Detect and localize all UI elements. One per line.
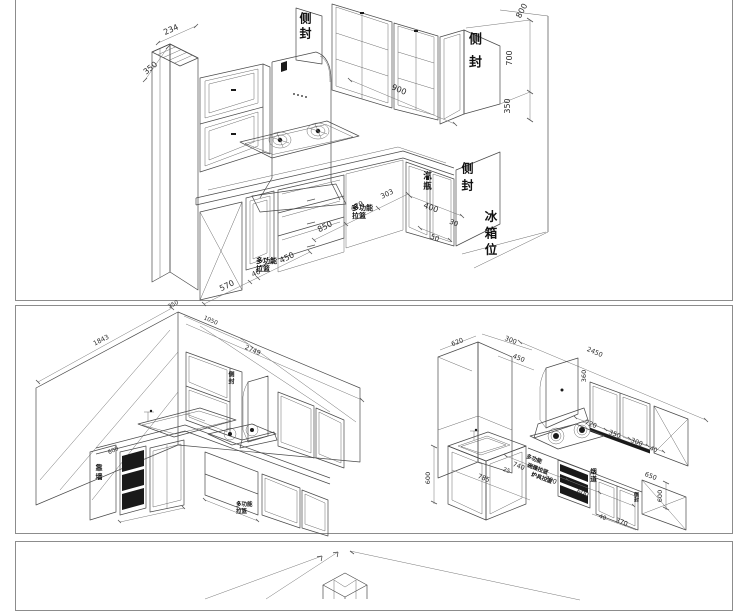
dim-300-top: 300 [503, 334, 517, 346]
dim-350-left: 350 [142, 60, 159, 77]
roof-dim: 2450 [518, 340, 708, 422]
dim-600: 600 [107, 446, 120, 456]
wall-cabinets [186, 352, 344, 468]
dim-650: 650 [643, 470, 657, 482]
dim-234-group: 234 [156, 22, 198, 45]
dim-900: 900 [390, 83, 408, 97]
label-end-panel-base: 侧封 [461, 162, 473, 196]
label-end-panel-right: 侧封 [467, 32, 480, 78]
dim-570: 570 [218, 278, 236, 293]
dim-450: 450 [278, 250, 296, 265]
label-basket-mid-line2: 拉篮 [352, 212, 373, 220]
drawing2-left-kitchen: 1843 350 1050 2749 [36, 300, 364, 536]
door-handles [231, 12, 429, 180]
dim-2450: 2450 [586, 345, 604, 359]
right-wall-line [500, 10, 548, 232]
label-flue: 烟道 [589, 468, 596, 483]
label-basket-mid: 多功能 拉篮 [352, 204, 373, 220]
drawing-1-axonometric: 234 350 [16, 0, 732, 300]
dim-740: 740 [511, 460, 525, 472]
tall-cabinet [438, 342, 512, 478]
dim-40-bottom: 40 [598, 514, 607, 522]
label-end-panel-d3: 侧封 [633, 492, 638, 502]
label-basket-d2-line1: 多功能 [236, 502, 253, 509]
dim-1843: 1843 [92, 333, 110, 348]
dim-400: 400 [422, 201, 439, 215]
hood-logo [281, 61, 287, 72]
wall-cabinet-glass-run [332, 4, 438, 120]
label-basket-left: 多功能 拉篮 [256, 257, 277, 273]
dim-600-left: 600 [424, 472, 432, 484]
dim-370: 370 [614, 516, 628, 528]
cabinet-corner-top [323, 573, 367, 599]
wall-cabinet-left-run [200, 64, 270, 172]
wall-cabinets-right [590, 382, 688, 466]
fridge-floor-lines [462, 232, 548, 268]
label-end-panel-d2: 侧封 [227, 371, 233, 385]
drawing3-right-kitchen: 620 300 450 2450 360 720 350 [424, 334, 708, 530]
label-basket-left-line2: 拉篮 [256, 265, 277, 273]
dim-chain-right: 400 30 50 [408, 194, 464, 243]
drawing-4-top-slice [16, 542, 732, 599]
label-against-wall: 靠墙 [95, 464, 102, 482]
dim-700: 700 [505, 50, 514, 65]
sink-cabinet: 600 785 25 [424, 429, 530, 520]
label-end-panel-top: 侧封 [299, 12, 311, 42]
dim-850: 850 [316, 219, 334, 234]
countertop [196, 147, 454, 205]
dim-785: 785 [476, 472, 490, 484]
dim-30: 30 [448, 218, 459, 229]
dim-25: 25 [502, 467, 511, 475]
cad-document-page: { "page": { "background": "#ffffff", "li… [0, 0, 750, 599]
dim-900-group: 900 [348, 78, 457, 126]
dim-350: 350 [167, 300, 180, 311]
dim-350-right: 350 [503, 98, 512, 113]
tall-cabinet-left [152, 44, 198, 290]
dim-234: 234 [162, 22, 180, 36]
converging-dim-lines [205, 551, 580, 600]
label-basket-left-line1: 多功能 [256, 257, 277, 265]
drawing-2-and-3: 1843 350 1050 2749 [16, 306, 732, 533]
label-basket-d2: 多功能 拉篮 [236, 502, 253, 515]
base-cabinets [90, 424, 328, 536]
label-gas-bottle: 汽瓶 [422, 171, 431, 192]
dim-2749: 2749 [244, 343, 262, 357]
dim-800: 800 [514, 2, 529, 20]
label-basket-d2-line2: 拉篮 [236, 509, 253, 516]
label-basket-mid-line1: 多功能 [352, 204, 373, 212]
dim-40-top: 40 [649, 446, 658, 454]
label-fridge-position: 冰箱位 [483, 210, 496, 260]
dims-tall: 620 300 450 [440, 334, 534, 370]
dim-360: 360 [580, 370, 588, 382]
hood-control-dots [293, 93, 307, 98]
dim-620: 620 [450, 336, 464, 348]
dim-303: 303 [379, 188, 395, 201]
burner-right [307, 123, 329, 139]
